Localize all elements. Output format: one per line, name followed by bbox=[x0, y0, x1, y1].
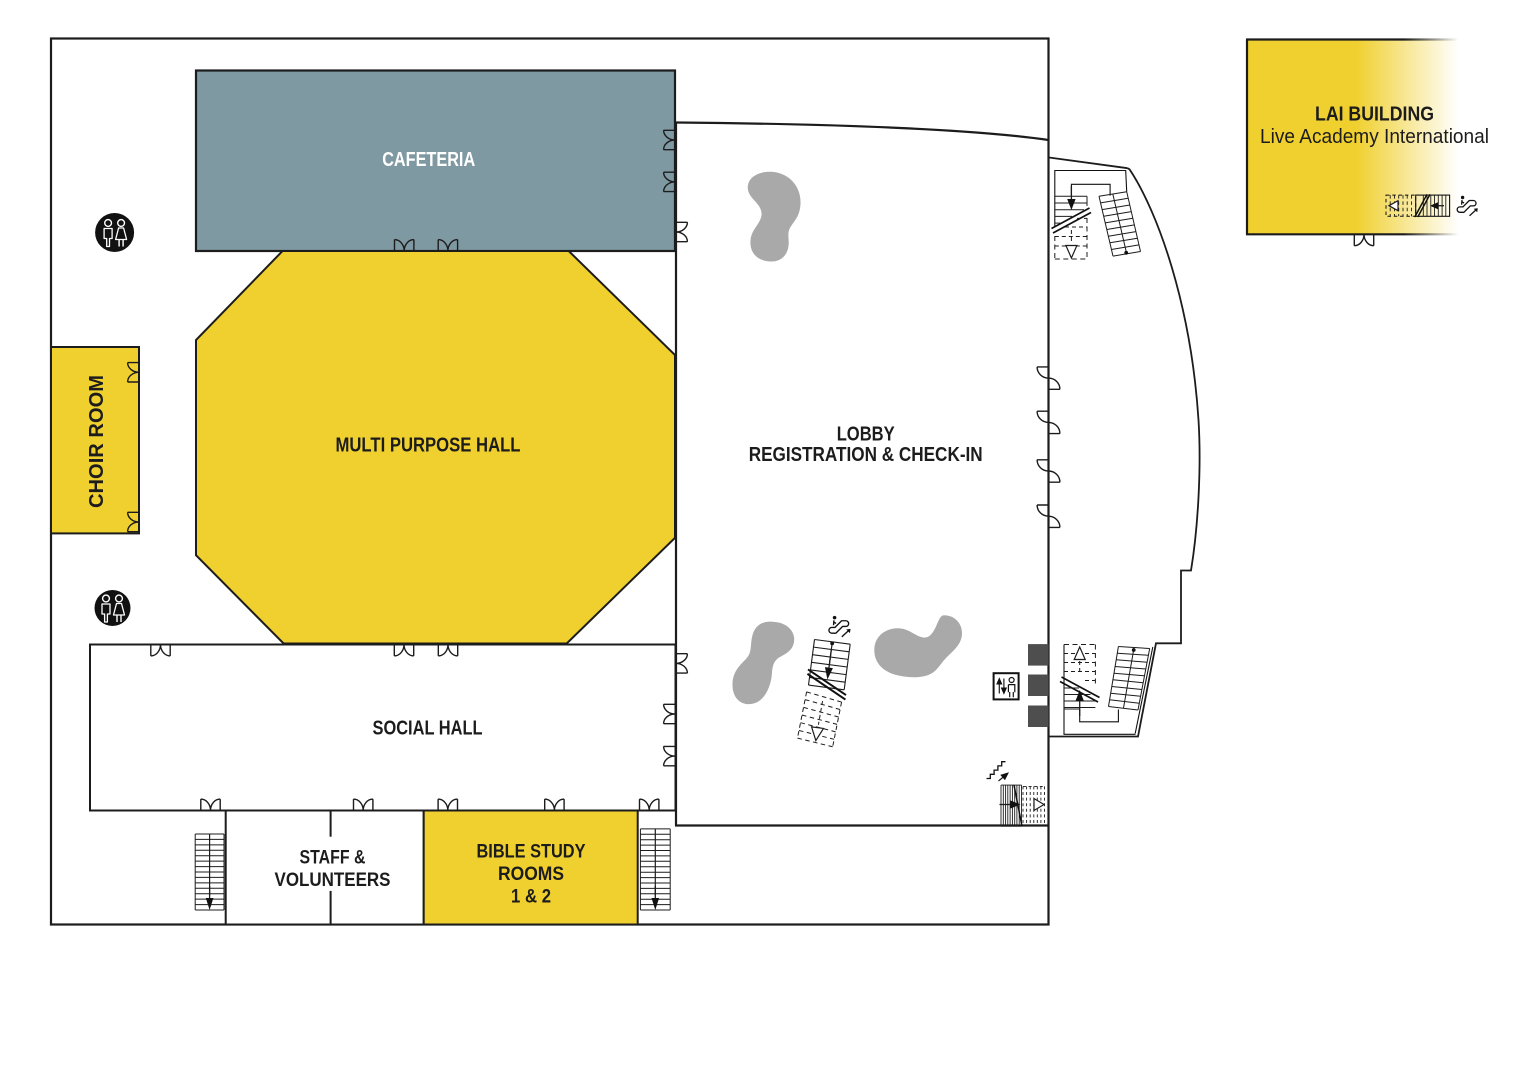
svg-text:ROOMS: ROOMS bbox=[498, 863, 564, 885]
svg-text:Live Academy International: Live Academy International bbox=[1260, 126, 1489, 148]
svg-text:1 & 2: 1 & 2 bbox=[511, 886, 551, 908]
svg-text:LAI BUILDING: LAI BUILDING bbox=[1315, 104, 1434, 126]
svg-text:STAFF &: STAFF & bbox=[300, 847, 366, 869]
svg-text:MULTI PURPOSE HALL: MULTI PURPOSE HALL bbox=[336, 434, 521, 457]
svg-text:CAFETERIA: CAFETERIA bbox=[382, 148, 475, 171]
svg-text:CHOIR ROOM: CHOIR ROOM bbox=[86, 375, 108, 508]
svg-text:SOCIAL HALL: SOCIAL HALL bbox=[373, 717, 483, 740]
svg-text:REGISTRATION & CHECK-IN: REGISTRATION & CHECK-IN bbox=[749, 443, 983, 466]
svg-text:VOLUNTEERS: VOLUNTEERS bbox=[275, 869, 391, 891]
svg-text:BIBLE STUDY: BIBLE STUDY bbox=[477, 841, 586, 863]
